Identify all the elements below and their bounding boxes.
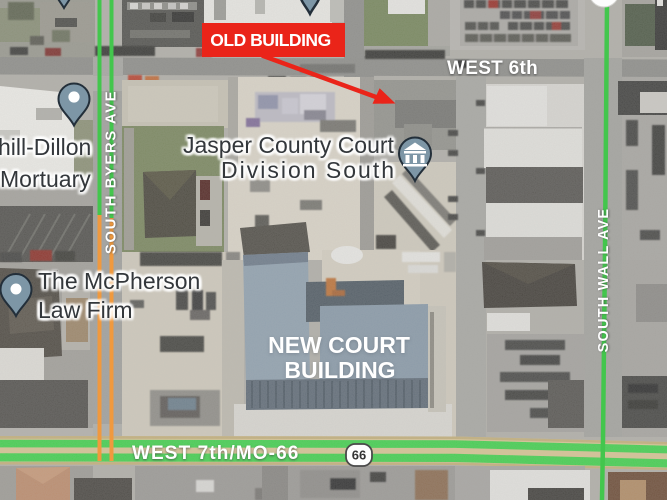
svg-text:66: 66 [352, 448, 366, 463]
